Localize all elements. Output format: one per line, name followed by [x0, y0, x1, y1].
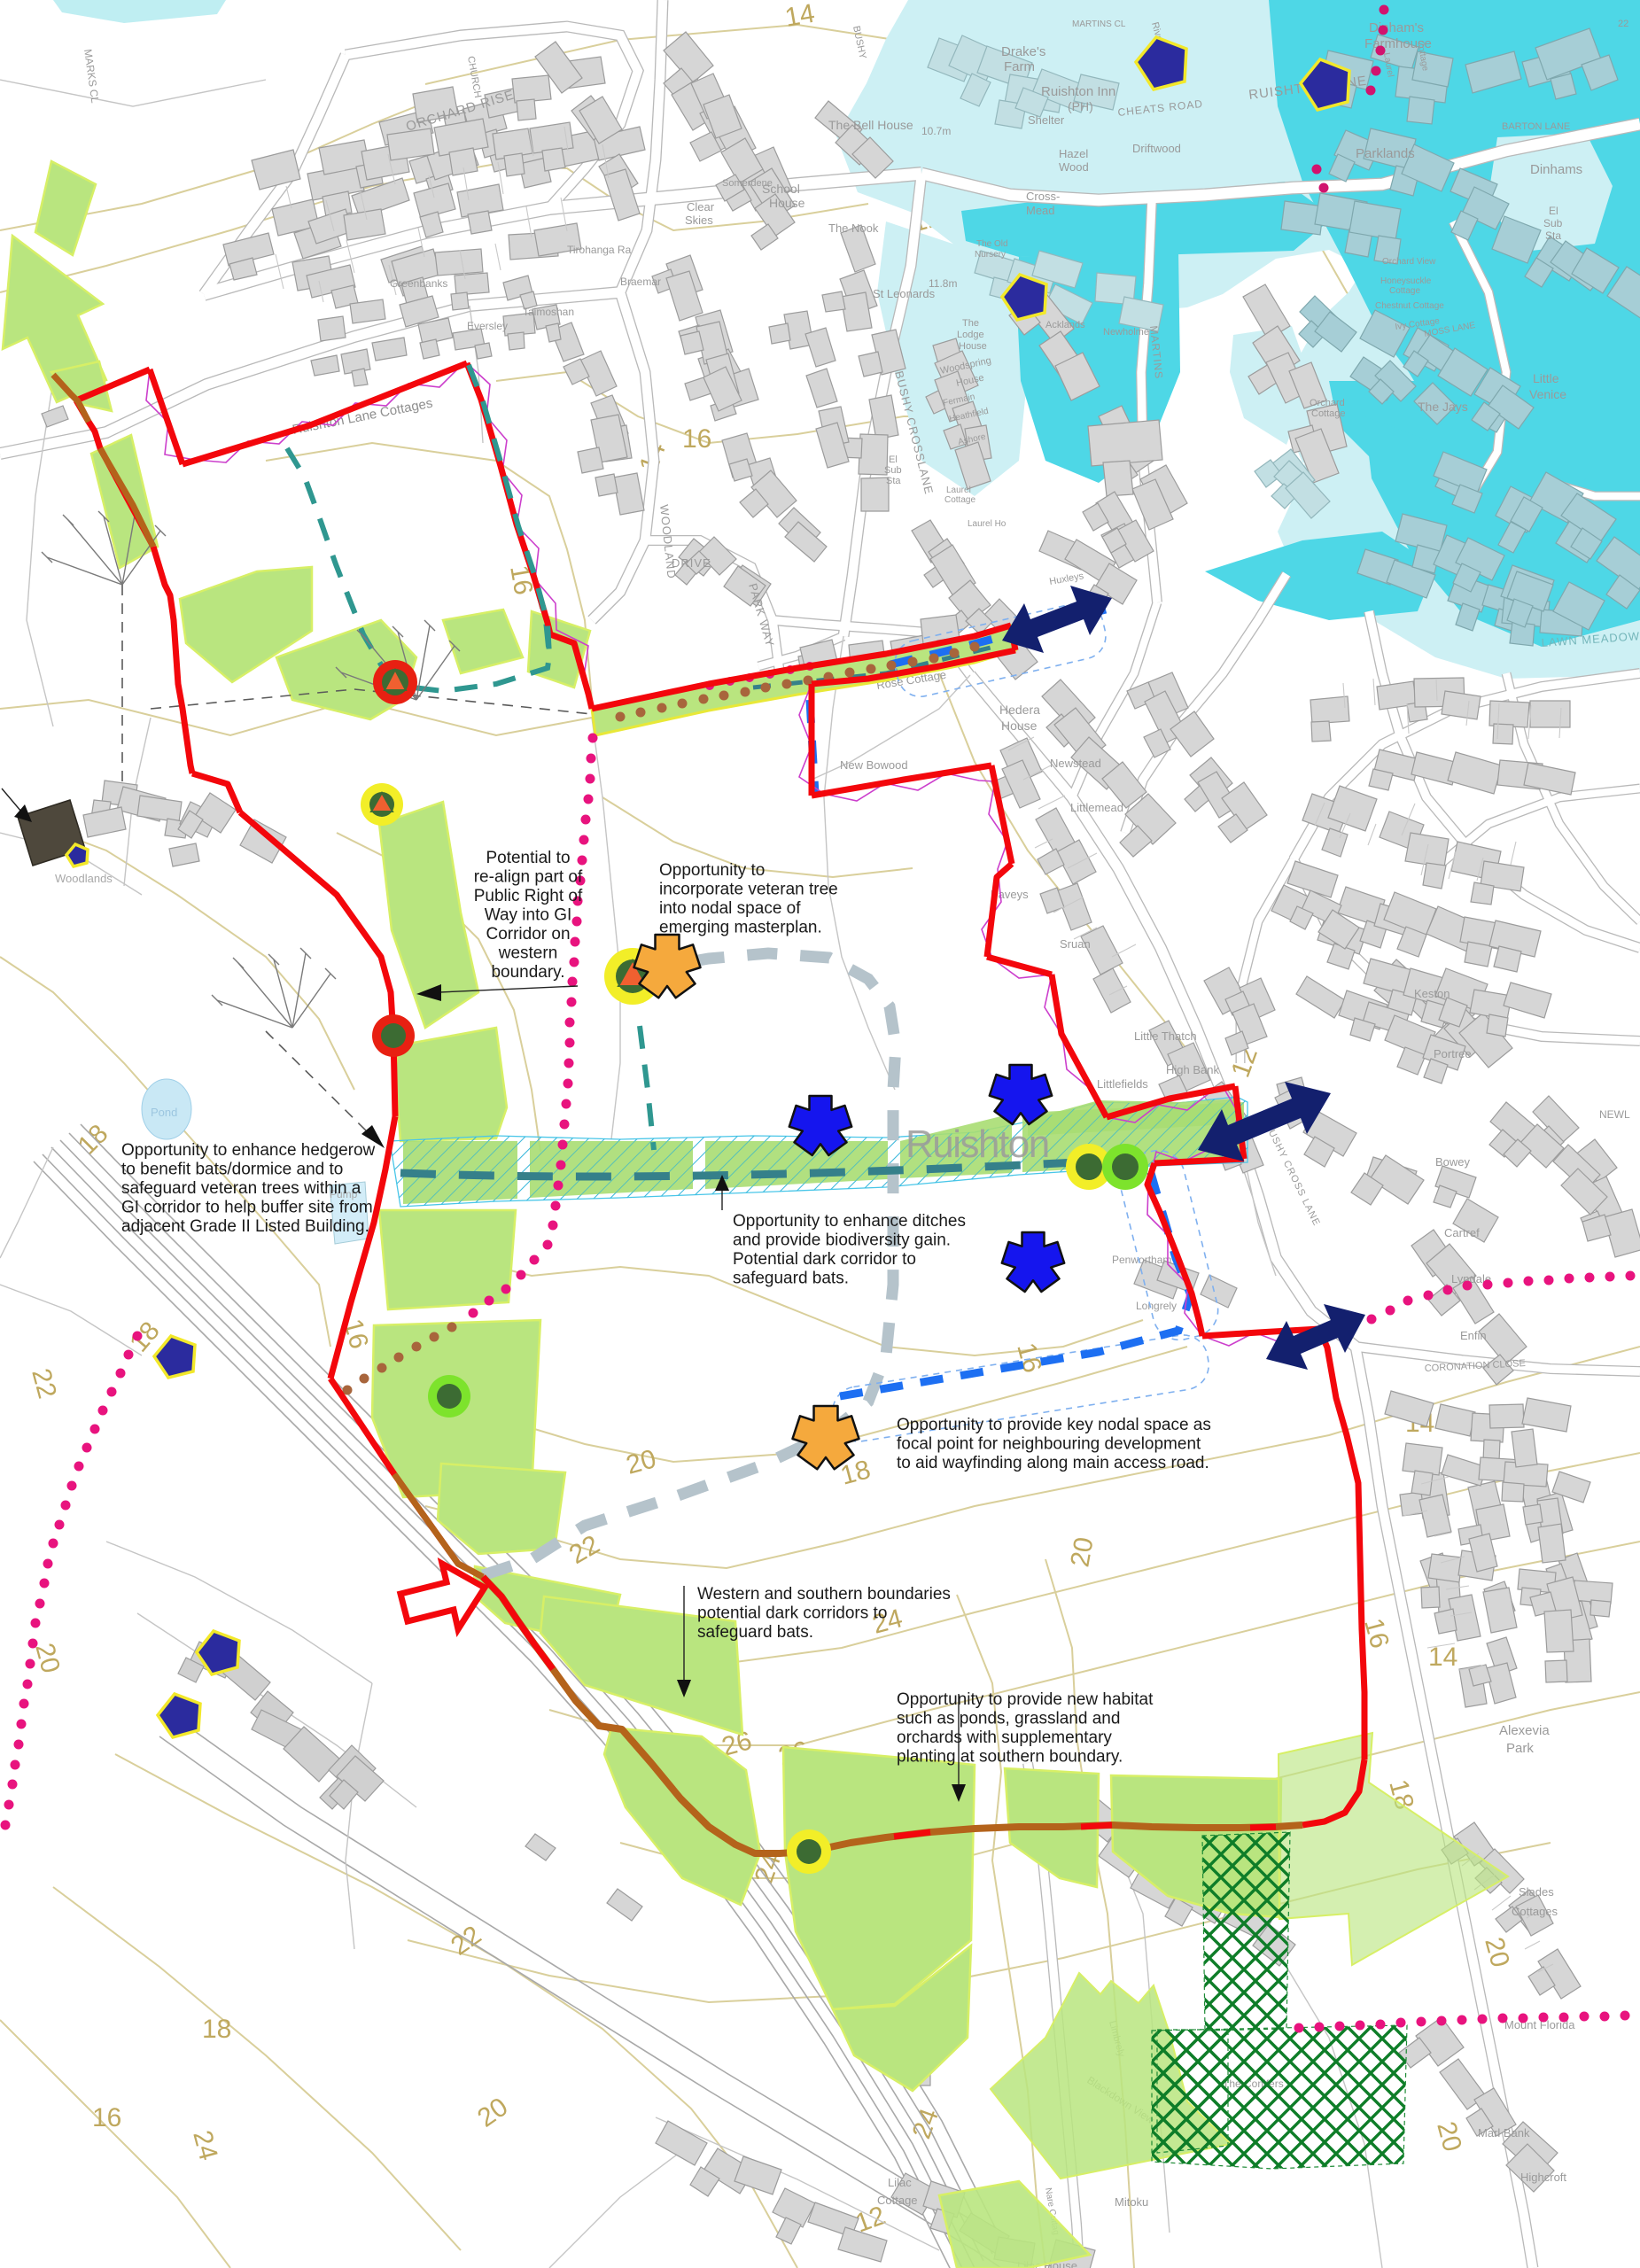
svg-text:such as ponds, grassland and: such as ponds, grassland and [897, 1710, 1120, 1728]
svg-text:Way into GI: Way into GI [485, 906, 572, 925]
svg-text:St Leonards: St Leonards [873, 287, 936, 300]
svg-text:The Bell House: The Bell House [828, 118, 913, 132]
svg-text:The Jays: The Jays [1418, 400, 1468, 414]
svg-text:10.7m: 10.7m [921, 125, 951, 137]
svg-text:safeguard veteran trees within: safeguard veteran trees within a [121, 1179, 361, 1198]
svg-text:Little Thatch: Little Thatch [1134, 1029, 1197, 1043]
svg-text:14: 14 [782, 0, 817, 33]
svg-text:18: 18 [202, 2015, 231, 2044]
svg-text:focal point for neighbouring d: focal point for neighbouring development [897, 1435, 1201, 1454]
svg-text:Penwortham: Penwortham [1112, 1254, 1171, 1266]
svg-text:Newstead: Newstead [1050, 757, 1101, 770]
svg-text:to benefit bats/dormice and to: to benefit bats/dormice and to [121, 1161, 343, 1179]
svg-text:16: 16 [92, 2103, 121, 2132]
svg-text:16: 16 [682, 424, 711, 454]
svg-text:Chestnut Cottage: Chestnut Cottage [1375, 301, 1444, 311]
svg-text:Ruishton Inn: Ruishton Inn [1041, 84, 1115, 99]
svg-text:Hazel: Hazel [1059, 147, 1088, 160]
svg-text:Orchard View: Orchard View [1382, 257, 1436, 267]
svg-text:High Bank: High Bank [1166, 1063, 1219, 1076]
svg-text:Orchard: Orchard [1310, 398, 1345, 408]
svg-text:Park: Park [1506, 1741, 1534, 1756]
svg-text:Opportunity to provide new hab: Opportunity to provide new habitat [897, 1690, 1154, 1709]
svg-text:and provide biodiversity gain.: and provide biodiversity gain. [733, 1231, 951, 1250]
svg-text:Littlefields: Littlefields [1097, 1077, 1148, 1091]
svg-text:Nursery: Nursery [975, 250, 1006, 260]
svg-text:22: 22 [1618, 19, 1628, 29]
svg-text:planting at southern boundary.: planting at southern boundary. [897, 1748, 1123, 1767]
svg-text:Western and southern boundarie: Western and southern boundaries [697, 1585, 951, 1604]
svg-text:Cottage: Cottage [1389, 286, 1420, 296]
svg-text:Venice: Venice [1529, 387, 1566, 401]
svg-text:Farm: Farm [1004, 59, 1035, 74]
svg-text:Honeysuckle: Honeysuckle [1380, 276, 1432, 286]
svg-text:DRIVE: DRIVE [672, 556, 711, 570]
svg-text:Potential to: Potential to [486, 849, 570, 867]
svg-text:Corridor on: Corridor on [486, 925, 570, 944]
svg-text:New Bowood: New Bowood [840, 758, 908, 772]
svg-text:incorporate veteran tree: incorporate veteran tree [659, 881, 838, 899]
svg-text:Keston: Keston [1414, 987, 1450, 1000]
svg-text:Opportunity to provide key nod: Opportunity to provide key nodal space a… [897, 1416, 1211, 1434]
svg-text:Cartref: Cartref [1444, 1226, 1480, 1239]
svg-text:into nodal space of: into nodal space of [659, 899, 801, 918]
svg-text:Lilac: Lilac [888, 2176, 912, 2189]
svg-text:Acklands: Acklands [1045, 320, 1085, 330]
svg-text:Drake's: Drake's [1001, 44, 1045, 59]
svg-text:Ruishton: Ruishton [905, 1122, 1049, 1166]
svg-text:western: western [498, 944, 558, 963]
svg-text:Sruan: Sruan [1060, 937, 1091, 951]
svg-text:Sta: Sta [1545, 229, 1561, 242]
svg-text:House: House [1001, 718, 1038, 733]
svg-text:Enfin: Enfin [1460, 1329, 1487, 1342]
svg-text:Greenbanks: Greenbanks [390, 277, 447, 290]
svg-text:Driftwood: Driftwood [1132, 142, 1181, 155]
svg-text:The Nook: The Nook [828, 221, 879, 235]
svg-text:Laurel Ho: Laurel Ho [968, 519, 1007, 529]
svg-text:The: The [962, 318, 979, 329]
svg-text:Bowey: Bowey [1435, 1155, 1471, 1169]
svg-text:Hedera: Hedera [999, 703, 1040, 717]
svg-text:safeguard bats.: safeguard bats. [697, 1623, 813, 1642]
svg-text:Tirohanga Ra: Tirohanga Ra [567, 244, 632, 256]
svg-text:Sta: Sta [886, 476, 901, 486]
svg-text:Pond: Pond [151, 1106, 177, 1119]
svg-text:potential dark corridors to: potential dark corridors to [697, 1604, 887, 1623]
svg-text:Cottage: Cottage [1311, 408, 1346, 419]
svg-text:Mead: Mead [1026, 204, 1055, 217]
svg-text:Cottages: Cottages [1512, 1905, 1558, 1918]
svg-text:(PH): (PH) [1068, 99, 1093, 113]
svg-text:Skies: Skies [685, 214, 713, 227]
svg-text:Newholme: Newholme [1103, 327, 1149, 338]
svg-text:Parklands: Parklands [1356, 146, 1415, 161]
svg-text:Wood: Wood [1059, 160, 1089, 174]
svg-text:El: El [889, 454, 898, 465]
svg-text:Cottage: Cottage [944, 495, 975, 505]
svg-text:Taimoshan: Taimoshan [523, 306, 574, 318]
svg-text:Clear: Clear [687, 200, 715, 214]
svg-text:Marl Bank: Marl Bank [1478, 2126, 1530, 2140]
svg-text:Cross-: Cross- [1026, 190, 1060, 203]
svg-text:House: House [769, 196, 805, 210]
svg-text:orchards with supplementary: orchards with supplementary [897, 1728, 1112, 1747]
svg-text:GI corridor to help buffer sit: GI corridor to help buffer site from [121, 1199, 373, 1217]
svg-text:Cottage: Cottage [877, 2194, 918, 2207]
svg-text:Opportunity to: Opportunity to [659, 861, 765, 880]
svg-text:Laurel: Laurel [946, 485, 971, 495]
svg-text:Little: Little [1533, 371, 1559, 385]
svg-text:Dinhams: Dinhams [1530, 162, 1582, 177]
svg-text:boundary.: boundary. [491, 963, 564, 982]
svg-text:Dinham's: Dinham's [1369, 20, 1424, 35]
svg-text:20: 20 [1065, 1535, 1099, 1570]
svg-text:Longrely: Longrely [1136, 1300, 1177, 1312]
svg-text:Alexevia: Alexevia [1499, 1723, 1550, 1738]
svg-text:Lodge: Lodge [957, 330, 984, 340]
svg-text:Eversley: Eversley [467, 320, 508, 332]
svg-text:Mitoku: Mitoku [1115, 2195, 1148, 2209]
svg-text:Potential dark corridor to: Potential dark corridor to [733, 1250, 916, 1269]
svg-text:NEWL: NEWL [1599, 1108, 1630, 1121]
svg-text:Public Right of: Public Right of [474, 887, 583, 905]
svg-text:Sub: Sub [884, 465, 902, 476]
svg-text:re-align part of: re-align part of [474, 868, 583, 887]
svg-text:Opportunity to enhance ditches: Opportunity to enhance ditches [733, 1212, 966, 1231]
svg-text:Highcroft: Highcroft [1520, 2171, 1566, 2184]
svg-text:The Old: The Old [976, 239, 1008, 249]
svg-text:House: House [959, 341, 987, 352]
svg-text:El: El [1549, 205, 1558, 217]
svg-text:safeguard bats.: safeguard bats. [733, 1270, 849, 1288]
svg-text:MARTINS CL: MARTINS CL [1072, 19, 1126, 29]
svg-text:Shelter: Shelter [1028, 113, 1065, 127]
svg-text:Littlemead: Littlemead [1070, 801, 1123, 814]
svg-text:to aid wayfinding along main a: to aid wayfinding along main access road… [897, 1454, 1209, 1472]
svg-text:BARTON LANE: BARTON LANE [1502, 121, 1570, 132]
svg-text:Sub: Sub [1543, 217, 1563, 229]
svg-text:Somerdene: Somerdene [722, 178, 773, 189]
svg-text:Braemar: Braemar [620, 276, 661, 288]
svg-text:Woodlands: Woodlands [55, 872, 113, 885]
svg-text:Slades: Slades [1519, 1885, 1554, 1899]
svg-text:Portree: Portree [1434, 1047, 1472, 1060]
svg-text:Opportunity to enhance hedgero: Opportunity to enhance hedgerow [121, 1141, 376, 1160]
svg-text:11.8m: 11.8m [929, 277, 957, 290]
svg-text:adjacent Grade II Listed Build: adjacent Grade II Listed Building. [121, 1217, 369, 1236]
svg-text:emerging masterplan.: emerging masterplan. [659, 919, 822, 937]
